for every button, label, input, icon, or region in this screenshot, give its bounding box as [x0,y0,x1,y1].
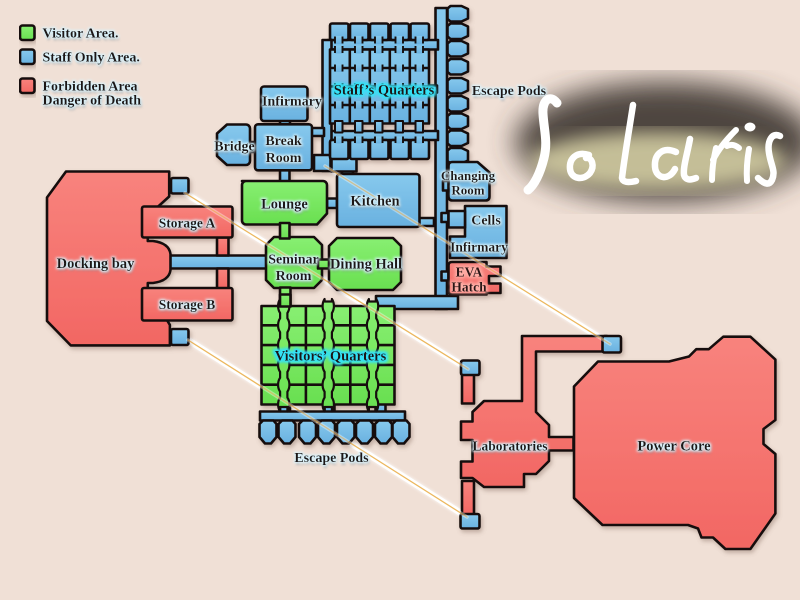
svg-text:Bridge: Bridge [214,140,254,155]
svg-text:Room: Room [451,183,484,198]
svg-text:Changing: Changing [441,168,496,183]
svg-text:Room: Room [266,151,302,166]
svg-text:Hatch: Hatch [451,280,487,295]
svg-text:Escape Pods: Escape Pods [472,84,547,99]
svg-text:EVA: EVA [456,265,483,280]
svg-text:Break: Break [265,134,302,149]
svg-text:Dining Hall: Dining Hall [330,257,402,273]
svg-text:Visitors’ Quarters: Visitors’ Quarters [275,349,387,365]
svg-text:Staff Only Area.: Staff Only Area. [43,51,140,66]
svg-text:Cells: Cells [471,214,501,229]
svg-text:Escape Pods: Escape Pods [294,451,369,466]
svg-text:Laboratories: Laboratories [473,439,548,454]
svg-text:Infirmary: Infirmary [262,95,322,110]
svg-text:Storage B: Storage B [159,297,216,312]
svg-text:Staff’s Quarters: Staff’s Quarters [334,83,435,99]
svg-text:Lounge: Lounge [261,197,308,213]
svg-text:Room: Room [276,269,312,284]
svg-text:Kitchen: Kitchen [350,194,399,210]
svg-text:Power Core: Power Core [637,439,711,455]
svg-text:Seminar: Seminar [268,253,319,268]
svg-text:Forbidden Area: Forbidden Area [43,80,138,95]
svg-text:Infirmary: Infirmary [450,240,508,255]
svg-text:Docking bay: Docking bay [57,256,136,272]
svg-text:Danger of Death: Danger of Death [43,94,142,109]
svg-text:Storage A: Storage A [159,216,216,231]
svg-text:Visitor Area.: Visitor Area. [43,27,119,42]
